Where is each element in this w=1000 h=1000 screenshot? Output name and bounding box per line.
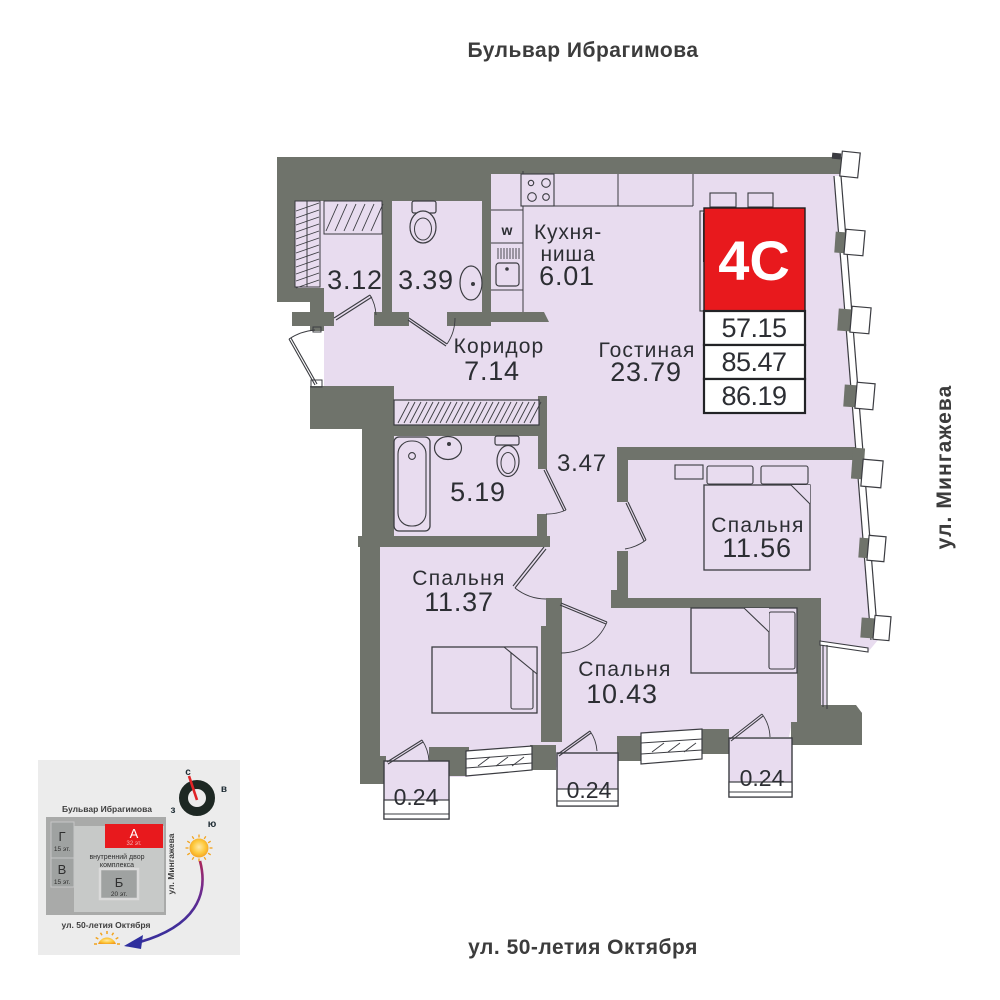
svg-text:з: з <box>171 805 176 816</box>
svg-text:11.56: 11.56 <box>722 533 792 563</box>
svg-text:0.24: 0.24 <box>740 765 785 791</box>
svg-text:23.79: 23.79 <box>610 357 682 387</box>
svg-text:А: А <box>130 826 139 841</box>
svg-text:Спальня: Спальня <box>578 658 671 681</box>
svg-text:ул. 50-летия Октября: ул. 50-летия Октября <box>468 936 698 959</box>
svg-text:15 эт.: 15 эт. <box>54 879 70 886</box>
svg-text:Б: Б <box>115 875 124 890</box>
svg-text:Бульвар Ибрагимова: Бульвар Ибрагимова <box>467 39 698 62</box>
svg-text:0.24: 0.24 <box>394 784 439 810</box>
svg-text:Кухня-: Кухня- <box>534 221 602 244</box>
svg-text:3.39: 3.39 <box>398 265 454 295</box>
svg-text:7.14: 7.14 <box>464 356 520 386</box>
svg-text:В: В <box>58 862 67 877</box>
svg-text:ул. 50-летия Октября: ул. 50-летия Октября <box>62 920 151 930</box>
svg-text:57.15: 57.15 <box>721 313 786 343</box>
svg-text:с: с <box>185 767 191 778</box>
svg-text:3.12: 3.12 <box>327 265 383 295</box>
svg-text:ул. Мингажева: ул. Мингажева <box>166 833 176 894</box>
svg-text:ю: ю <box>208 819 217 830</box>
svg-text:32 эт.: 32 эт. <box>126 841 141 847</box>
svg-text:15 эт.: 15 эт. <box>54 846 70 853</box>
svg-text:3.47: 3.47 <box>557 450 607 477</box>
svg-text:11.37: 11.37 <box>424 587 494 617</box>
svg-text:4С: 4С <box>718 229 790 292</box>
svg-text:Г: Г <box>58 829 65 844</box>
svg-text:Бульвар Ибрагимова: Бульвар Ибрагимова <box>62 804 152 814</box>
svg-text:ул. Мингажева: ул. Мингажева <box>933 385 956 550</box>
svg-text:5.19: 5.19 <box>450 477 506 507</box>
svg-text:в: в <box>221 784 227 795</box>
svg-text:86.19: 86.19 <box>721 381 786 411</box>
svg-text:w: w <box>501 222 513 238</box>
svg-text:10.43: 10.43 <box>586 679 658 709</box>
svg-text:внутренний двор: внутренний двор <box>89 853 144 861</box>
svg-text:0.24: 0.24 <box>567 777 612 803</box>
svg-text:6.01: 6.01 <box>539 261 595 291</box>
svg-text:20 эт.: 20 эт. <box>111 891 127 898</box>
svg-text:85.47: 85.47 <box>721 347 786 377</box>
svg-text:Коридор: Коридор <box>454 335 545 358</box>
